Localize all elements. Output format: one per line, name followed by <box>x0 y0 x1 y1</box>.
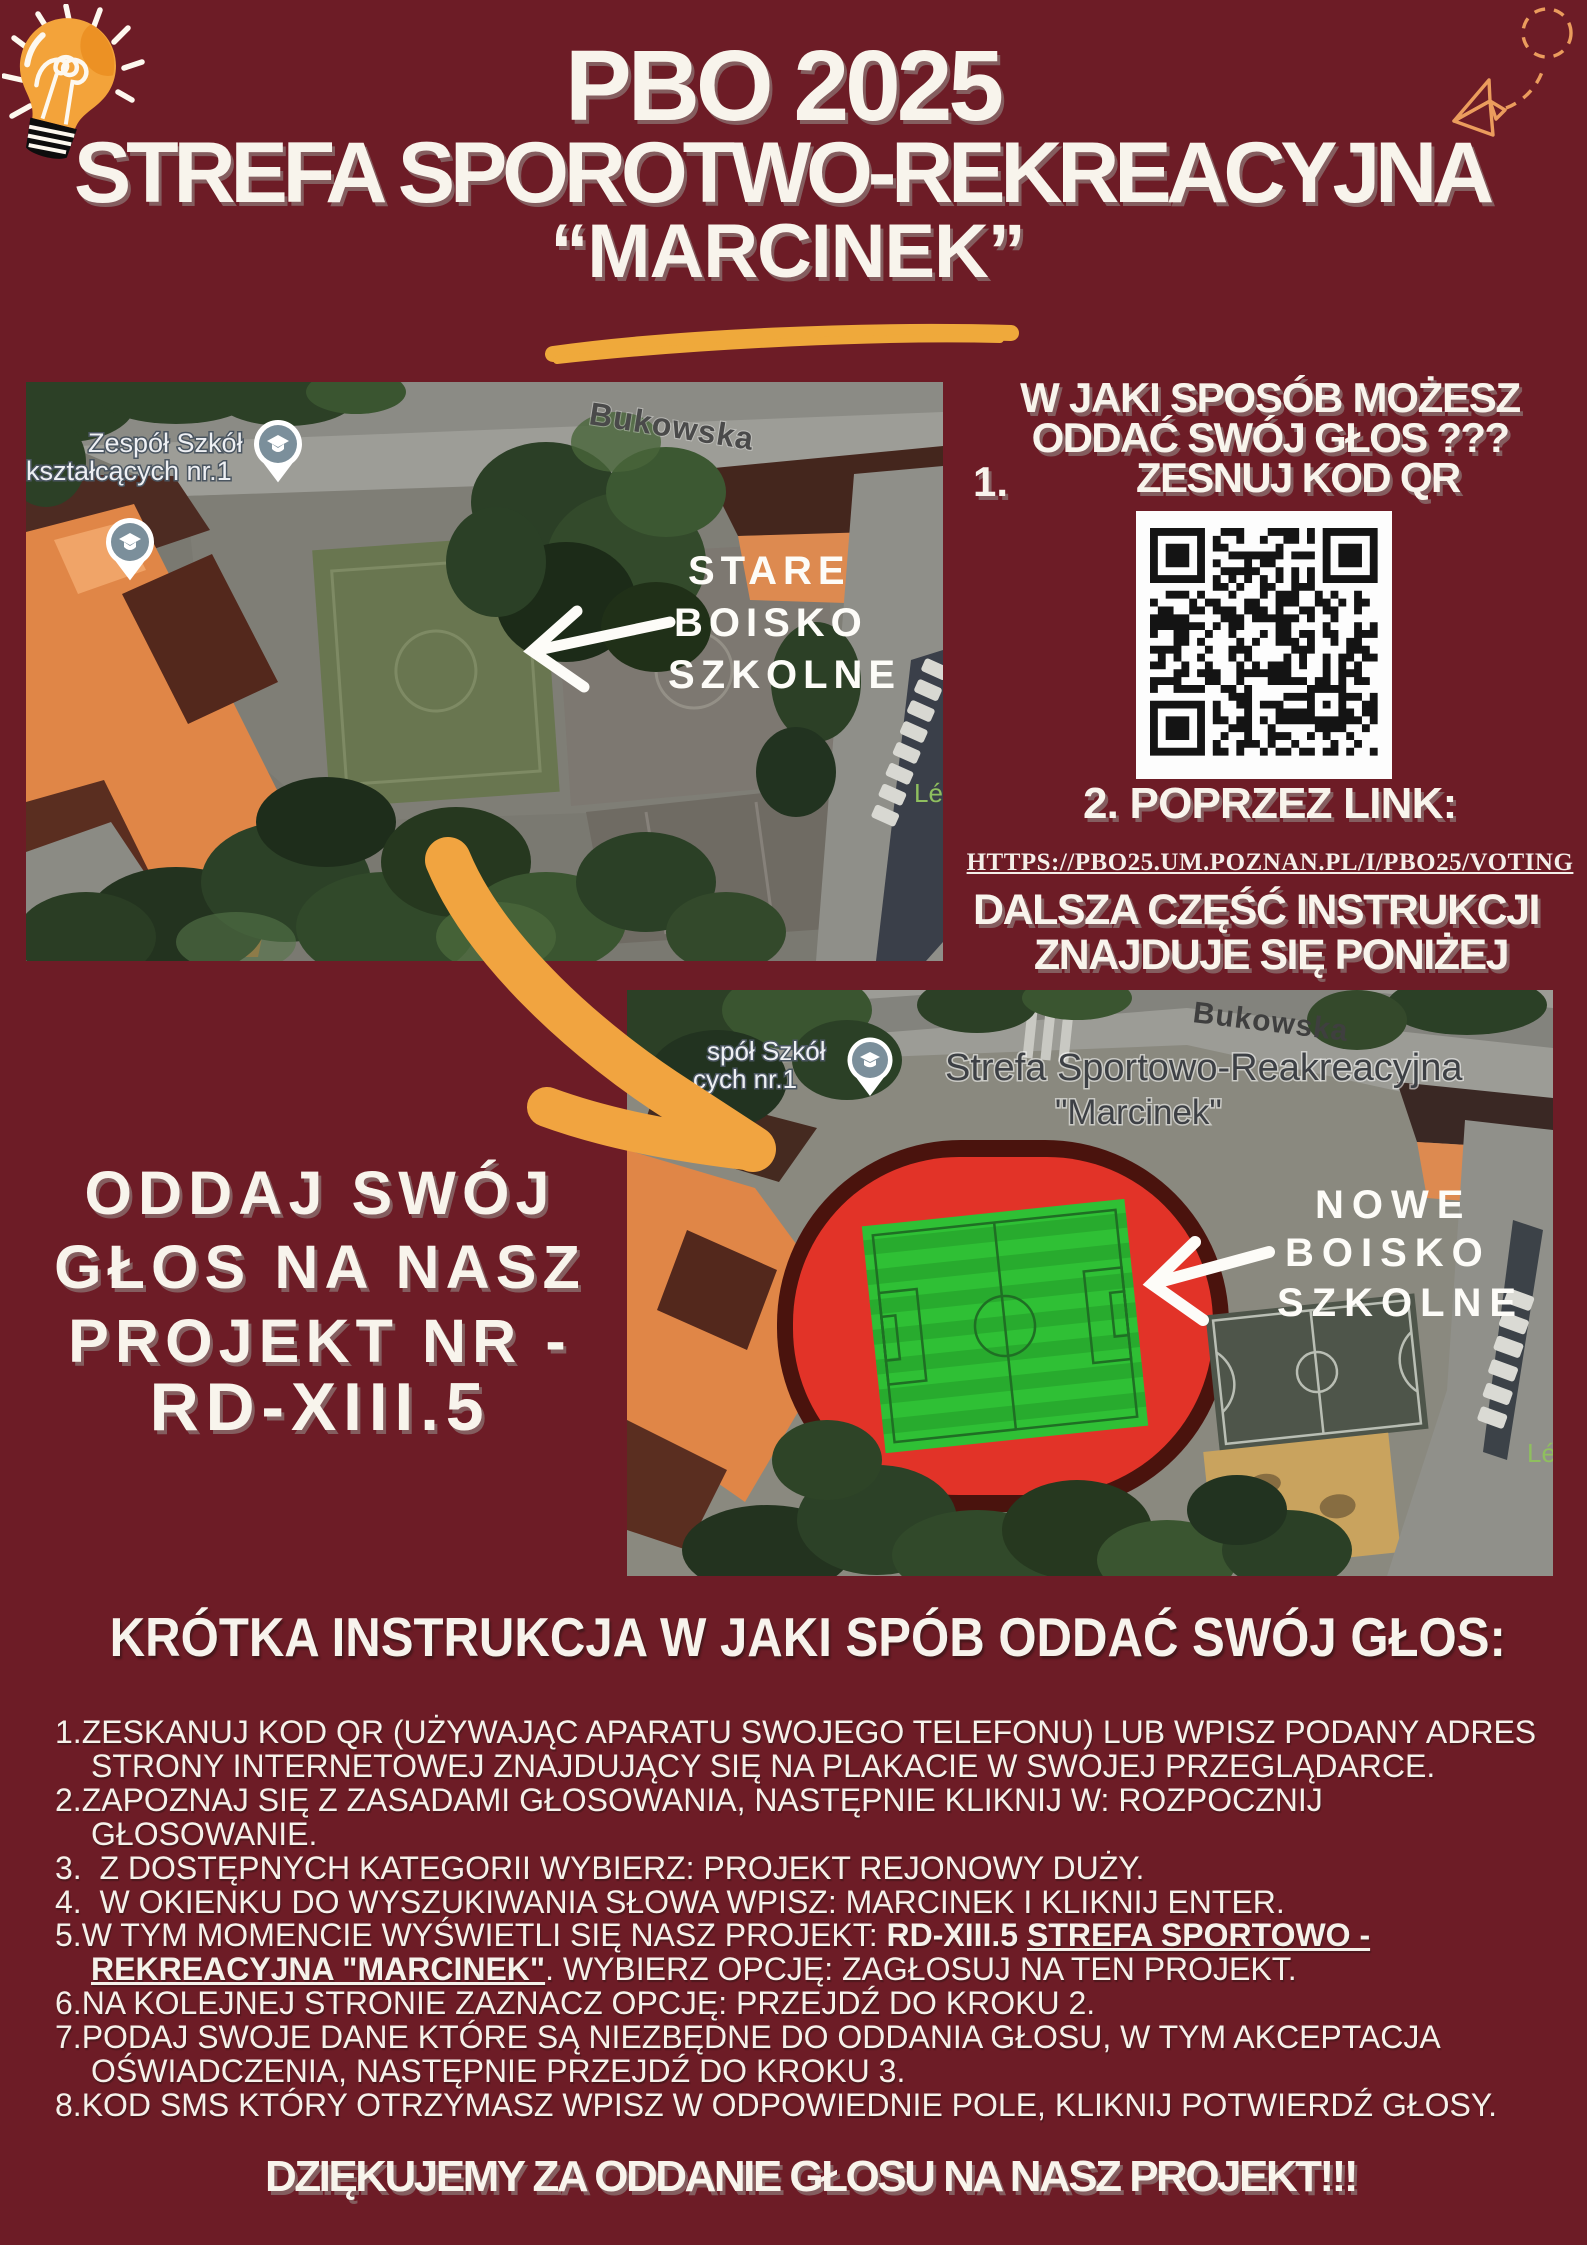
svg-text:NOWE: NOWE <box>1315 1183 1471 1227</box>
svg-text:STARE: STARE <box>688 549 851 593</box>
svg-text:BOISKO: BOISKO <box>674 601 868 645</box>
svg-text:"Marcinek": "Marcinek" <box>1055 1093 1222 1132</box>
svg-text:SZKOLNE: SZKOLNE <box>668 653 901 697</box>
svg-text:Strefa Sportowo-Reakreacyjna: Strefa Sportowo-Reakreacyjna <box>945 1047 1463 1089</box>
svg-text:kształcących nr.1: kształcących nr.1 <box>26 456 232 486</box>
svg-text:BOISKO: BOISKO <box>1285 1231 1491 1275</box>
svg-text:Lé: Lé <box>914 778 943 808</box>
svg-text:SZKOLNE: SZKOLNE <box>1277 1281 1524 1325</box>
svg-text:Lé: Lé <box>1527 1438 1553 1468</box>
svg-text:Zespół Szkół: Zespół Szkół <box>88 428 243 458</box>
